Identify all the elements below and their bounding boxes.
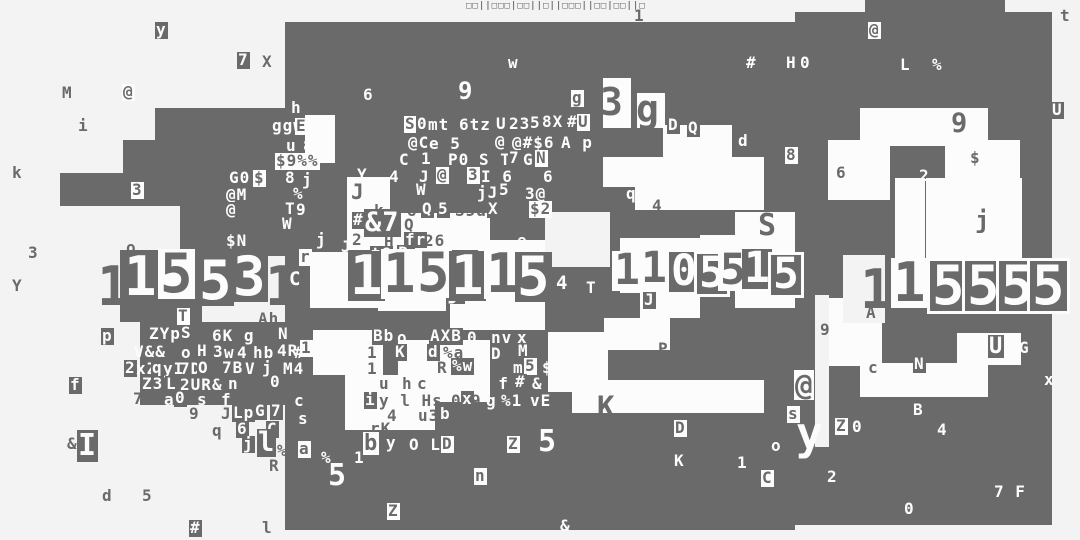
glyph: 2 <box>124 360 137 377</box>
glyph: 4 <box>652 198 663 215</box>
glyph: c <box>294 393 305 410</box>
glyph: 1 <box>354 450 365 467</box>
glyph: 1 <box>367 361 378 378</box>
glyph: A p <box>561 135 593 152</box>
glyph: h <box>291 100 302 117</box>
glyph: d <box>102 488 113 505</box>
glyph: X <box>262 54 273 71</box>
glyph: $ <box>969 150 982 167</box>
glyph: U <box>496 116 507 133</box>
glyph: R <box>437 360 448 377</box>
glyph: 7 F <box>994 484 1026 501</box>
glyph: j <box>242 436 255 453</box>
glyph: l <box>257 429 276 457</box>
glyph: Q <box>687 120 700 137</box>
glyph: 7 <box>270 403 283 420</box>
glyph: 5 <box>524 358 537 375</box>
glyph: S <box>404 116 417 133</box>
glyph: d <box>738 133 749 150</box>
glyph: 0 <box>799 55 812 72</box>
block-region-dark <box>865 0 1005 14</box>
glyph: R <box>269 458 280 475</box>
big-digit-middle-number: 1 <box>348 251 385 301</box>
glyph: 5 <box>437 201 450 218</box>
glyph: D <box>441 436 454 453</box>
glyph: 3 <box>131 182 144 199</box>
glyph: 9 <box>458 79 473 104</box>
glyph: Z3 <box>141 376 164 393</box>
glyph: Y <box>12 278 23 295</box>
glyph: 0 <box>904 501 915 518</box>
glyph: 7 <box>237 52 250 69</box>
glyph: 0 <box>174 390 187 407</box>
glyph: 9 <box>951 110 968 138</box>
glyph: 6 <box>363 87 374 104</box>
glyph: 5 <box>499 182 510 199</box>
block-region-light <box>285 530 815 540</box>
glyph: 9 <box>296 202 307 219</box>
glyph: %w <box>451 358 474 375</box>
glyph: U <box>1051 102 1064 119</box>
glyph: 3 <box>28 245 39 262</box>
glyph: n <box>474 468 487 485</box>
glyph: L <box>900 57 911 74</box>
glyph: P <box>658 341 669 358</box>
glyph: k <box>12 165 23 182</box>
glyph: @ <box>122 84 135 101</box>
big-digit-middle-right-number: 5 <box>768 252 804 298</box>
glyph: mt <box>428 117 449 134</box>
glyph: 3 <box>600 83 624 123</box>
glyph: f <box>69 377 82 394</box>
block-region-white <box>906 136 919 146</box>
glyph: y <box>155 22 168 39</box>
glyph: t <box>1060 8 1071 25</box>
glyph: M <box>62 85 73 102</box>
glyph: C <box>399 152 410 169</box>
glyph: I <box>77 430 98 462</box>
glyph: 23 <box>508 116 531 133</box>
glyph: X <box>487 201 500 218</box>
big-digit-middle-number: 5 <box>415 248 452 298</box>
glyph: N <box>535 150 548 167</box>
glyph: G <box>523 152 534 169</box>
glyph: 1 <box>420 151 433 168</box>
glyph: r <box>299 249 312 266</box>
glyph: 0 <box>416 116 429 133</box>
glyph: o <box>771 438 782 455</box>
glyph: 5 <box>142 488 153 505</box>
glyph: & <box>560 518 571 535</box>
glyph: p <box>101 328 114 345</box>
glyph: 4 <box>937 422 948 439</box>
glyph: D <box>491 346 502 363</box>
block-region-light <box>815 525 1052 540</box>
big-digit-right-number: 1 <box>891 258 928 308</box>
big-digit-right-number: 5 <box>1027 258 1070 314</box>
glyph: N <box>913 356 926 373</box>
glyph: @ <box>494 134 507 151</box>
glyph: 0 <box>852 419 863 436</box>
glyph: U <box>988 335 1004 358</box>
glyph: 2 <box>827 469 838 486</box>
big-digit-middle-number: 5 <box>515 252 552 302</box>
glyph: @ <box>794 370 814 400</box>
glyph: V <box>245 361 256 378</box>
glyph: U <box>577 114 590 131</box>
glyph: D <box>667 117 680 134</box>
glyph: 2 <box>919 168 930 185</box>
big-digit-left-number: 1 <box>122 252 159 302</box>
glyph: u3 <box>418 408 439 425</box>
glyph: K <box>597 392 615 422</box>
glyph: a <box>298 441 311 458</box>
glyph: 9 <box>189 406 200 423</box>
big-digit-left-number: 5 <box>197 256 234 306</box>
glyph: j <box>316 232 327 249</box>
glyph: 8X <box>541 114 564 131</box>
glyph: c <box>868 360 879 377</box>
big-digit-middle-right-number: 1 <box>639 249 669 289</box>
glyph: j <box>975 208 990 233</box>
block-region-white <box>924 136 937 146</box>
glyph: q <box>212 423 223 440</box>
glyph: K <box>394 344 407 361</box>
glyph: 6tz <box>459 117 491 134</box>
glyph: G <box>254 403 267 420</box>
glyph: K <box>674 453 685 470</box>
glyph: # <box>514 374 527 391</box>
glyph: ZYp <box>148 326 182 343</box>
glyph: 9 <box>820 322 831 339</box>
glyph: % <box>932 57 943 74</box>
glyph: 5 <box>538 426 557 458</box>
glyph: x <box>1044 372 1055 389</box>
glyph: S <box>180 325 193 342</box>
glyph: 5 <box>328 460 347 492</box>
big-digit-middle-number: 1 <box>381 249 418 299</box>
glyph: b <box>439 406 452 423</box>
glyph: 0 <box>467 330 478 347</box>
glyph: 4 <box>389 169 400 186</box>
glyph: $9%% <box>275 153 320 170</box>
glyph: 8 <box>785 147 798 164</box>
glyph: O L <box>409 437 441 454</box>
glyph: g <box>571 90 584 107</box>
big-digit-left-number: 1 <box>263 262 300 312</box>
big-digit-right-number: 1 <box>858 265 895 315</box>
glyph: Z <box>387 503 400 520</box>
glyph: W <box>281 216 294 233</box>
glyph: □□||□□□|□□||□||□□□||□□|□□||□ <box>466 2 646 11</box>
glyph: S <box>758 210 777 242</box>
glyph: C <box>761 470 774 487</box>
block-region-white <box>603 157 764 187</box>
glyph: 9 <box>471 393 482 410</box>
block-region-light <box>545 212 610 267</box>
glyph: y <box>385 435 398 452</box>
noise-art-canvas: y7XM@ik33Yo1t□□||□□□|□□||□||□□□||□□|□□||… <box>0 0 1080 540</box>
glyph: J <box>350 181 366 203</box>
big-digit-middle-right-number: 1 <box>612 251 642 291</box>
glyph: J <box>643 292 656 309</box>
glyph: y <box>796 410 824 457</box>
glyph: H <box>786 55 797 72</box>
glyph: C <box>284 423 295 440</box>
glyph: # <box>745 55 758 72</box>
glyph: i <box>364 392 377 409</box>
glyph: Q <box>421 201 434 218</box>
glyph: # <box>352 212 365 229</box>
glyph: 7 <box>133 391 144 408</box>
glyph: l <box>262 520 273 537</box>
glyph: @ <box>436 167 449 184</box>
glyph: Z <box>835 418 848 435</box>
big-digit-left-number: 5 <box>158 249 195 299</box>
glyph: b <box>363 432 379 455</box>
glyph: %1 <box>501 393 522 410</box>
glyph: D <box>674 420 687 437</box>
glyph: Z <box>507 436 520 453</box>
glyph: 7 <box>508 150 521 167</box>
block-region-white <box>548 332 608 392</box>
glyph: M4 <box>283 361 304 378</box>
glyph: @ <box>868 22 881 39</box>
glyph: 3 <box>467 167 480 184</box>
glyph: vE <box>530 393 551 410</box>
glyph: 6i <box>234 137 255 154</box>
glyph: W <box>415 182 428 199</box>
glyph: $2 <box>529 201 552 218</box>
glyph: s <box>298 411 309 428</box>
glyph: $ <box>253 170 266 187</box>
glyph: 0 <box>269 374 282 391</box>
glyph: S5d <box>455 203 487 220</box>
glyph: 5 <box>530 115 541 132</box>
glyph: g <box>486 393 497 410</box>
glyph: E <box>295 118 308 135</box>
glyph: g <box>636 90 660 130</box>
glyph: # <box>189 520 202 537</box>
glyph: B <box>913 402 924 419</box>
glyph: 1 <box>737 455 748 472</box>
glyph: 4 <box>556 274 568 294</box>
block-region-white <box>924 122 937 132</box>
glyph: w <box>508 55 519 72</box>
glyph: $ <box>542 360 553 377</box>
glyph: T <box>586 280 597 297</box>
big-digit-middle-number: 1 <box>449 251 486 301</box>
glyph: G <box>1019 340 1030 357</box>
glyph: q <box>626 186 637 203</box>
block-region-white <box>906 122 919 132</box>
glyph: 1 <box>300 340 313 357</box>
glyph: i <box>78 118 89 135</box>
glyph: 6 <box>836 165 847 182</box>
glyph: &7 <box>364 209 401 237</box>
